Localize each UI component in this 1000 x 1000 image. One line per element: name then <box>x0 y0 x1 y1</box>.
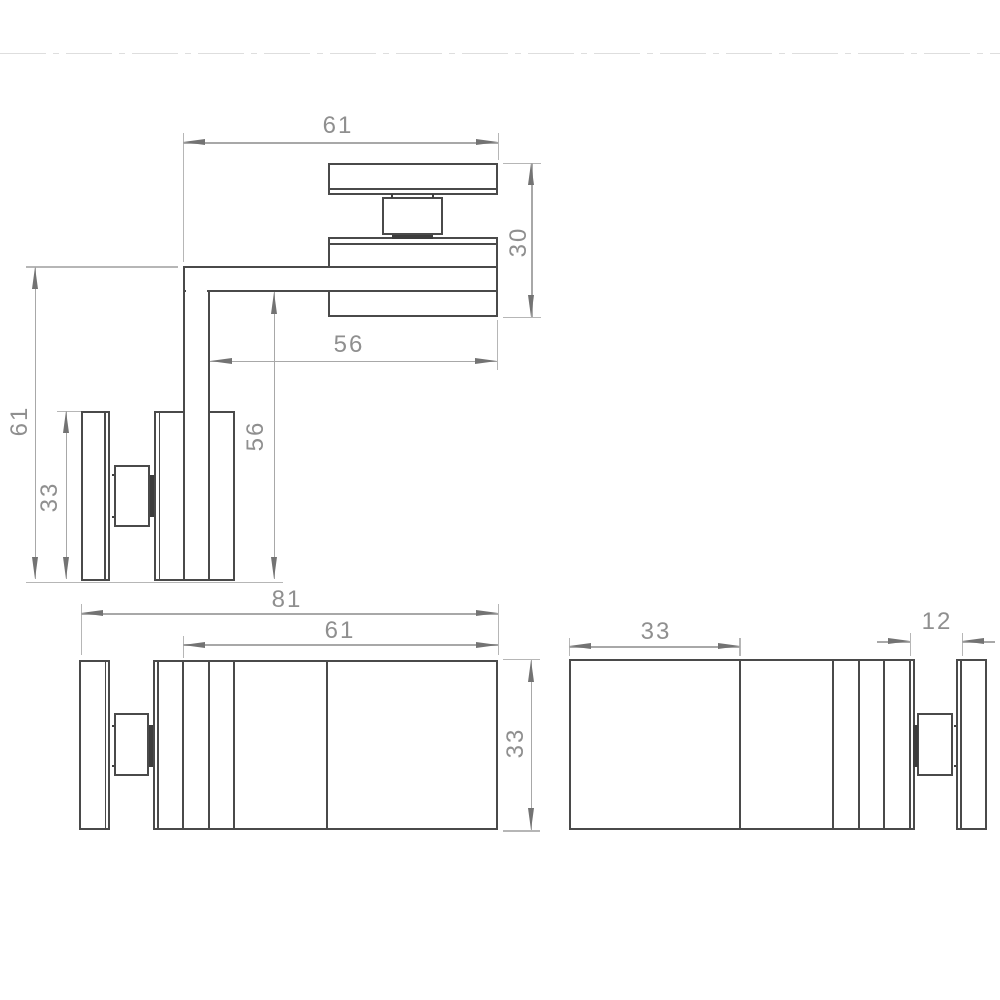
plan-right-clamp-gasket-line-middle <box>330 243 496 245</box>
plan-bottom-clamp-knob <box>114 465 150 527</box>
knob-shaft-tick <box>112 765 115 767</box>
plan-right-clamp-plate-middle <box>328 237 498 269</box>
extension-line <box>910 633 912 657</box>
front-body-edge-line <box>182 660 184 830</box>
dim-arrow-up <box>63 411 69 433</box>
plan-arm-horizontal <box>183 266 498 292</box>
dimension-line <box>274 292 276 579</box>
plan-bottom-clamp-plate-back <box>208 411 236 581</box>
extension-line <box>962 633 964 657</box>
dim-arrow-left <box>210 358 232 364</box>
dim-arrow-left <box>81 610 103 616</box>
extension-line <box>503 317 541 319</box>
dim-label-front-arm: 61 <box>325 617 356 645</box>
front-gasket-line-body <box>157 661 159 829</box>
dimension-line <box>183 142 498 144</box>
dim-arrow-left <box>183 642 205 648</box>
extension-line <box>498 133 500 160</box>
dimension-line <box>35 267 37 580</box>
extension-line <box>503 163 541 165</box>
dim-label-plan-inner-horizontal: 56 <box>334 331 365 359</box>
extension-line <box>57 411 81 413</box>
dimension-line <box>531 660 533 830</box>
dimension-line <box>66 411 68 579</box>
dim-label-plan-arm-top: 61 <box>323 112 354 140</box>
extension-line <box>26 582 283 584</box>
side-body-edge-line <box>883 659 885 830</box>
plan-bottom-clamp-gasket-line-middle <box>159 412 161 580</box>
plan-bottom-clamp-plate-outer <box>81 411 110 581</box>
plan-right-clamp-gasket-line-top <box>330 188 496 190</box>
dim-arrow-right <box>476 610 498 616</box>
extension-line <box>183 133 185 262</box>
knob-shaft-tick <box>112 516 115 518</box>
dim-arrow-down <box>63 557 69 579</box>
dim-arrow-left <box>569 643 591 649</box>
dim-label-plan-plate-length: 33 <box>36 482 64 513</box>
dim-arrow-right <box>475 358 497 364</box>
dim-label-plan-arm-left: 61 <box>6 406 34 437</box>
knob-shaft-bar <box>392 235 434 239</box>
extension-line <box>503 830 540 832</box>
dim-label-plan-inner-vertical: 56 <box>242 421 270 452</box>
plan-bottom-clamp-gasket-line-left <box>104 412 106 580</box>
front-knob <box>114 713 149 776</box>
front-body-edge-line <box>208 660 210 830</box>
dim-arrow-up <box>32 267 38 289</box>
dim-arrow-right <box>718 643 740 649</box>
dim-arrow-down <box>271 557 277 579</box>
drawing-canvas: 61 30 56 56 61 33 <box>0 0 1000 1000</box>
dim-arrow-down <box>528 295 534 317</box>
side-body-edge-line <box>858 659 860 830</box>
knob-shaft-tick <box>112 725 115 727</box>
side-gasket-line-body <box>909 660 911 829</box>
dim-label-front-height: 33 <box>502 728 530 759</box>
inner-corner-patch <box>186 290 208 293</box>
knob-shaft-tick <box>112 474 115 476</box>
dim-arrow-left <box>183 139 205 145</box>
dim-arrow-right <box>476 642 498 648</box>
knob-shaft-bar <box>913 725 918 767</box>
plan-arm-vertical <box>183 266 210 581</box>
dim-arrow-right <box>476 139 498 145</box>
dim-arrow-up <box>271 292 277 314</box>
side-body-edge-line <box>832 659 834 830</box>
dim-arrow-down <box>32 557 38 579</box>
front-body-edge-line <box>233 660 235 830</box>
plan-right-clamp-plate-back <box>328 290 498 317</box>
knob-shaft-tick <box>432 194 434 198</box>
dimension-line <box>210 361 497 363</box>
extension-line <box>26 266 178 268</box>
dim-arrow-up <box>528 660 534 682</box>
page-separator-dashed-line <box>0 53 1000 54</box>
dim-arrow-left <box>962 638 984 644</box>
dim-arrow-right <box>888 638 910 644</box>
dim-label-plan-clamp-width: 30 <box>505 227 533 258</box>
side-gasket-line-plate <box>960 660 962 829</box>
extension-line <box>503 659 540 661</box>
dimension-line <box>569 646 740 648</box>
dim-label-front-overall: 81 <box>272 586 303 614</box>
front-body-edge-line <box>326 660 328 830</box>
front-gasket-line-left <box>105 661 107 829</box>
dim-label-side-slot: 12 <box>922 608 953 636</box>
dim-arrow-down <box>528 808 534 830</box>
plan-right-clamp-knob <box>382 197 443 235</box>
knob-shaft-tick <box>391 194 393 198</box>
knob-shaft-bar <box>150 475 154 517</box>
side-body-edge-line <box>739 659 741 830</box>
dim-label-side-face: 33 <box>641 618 672 646</box>
dim-arrow-up <box>528 163 534 185</box>
side-body-block <box>569 659 915 830</box>
side-knob <box>917 713 953 776</box>
